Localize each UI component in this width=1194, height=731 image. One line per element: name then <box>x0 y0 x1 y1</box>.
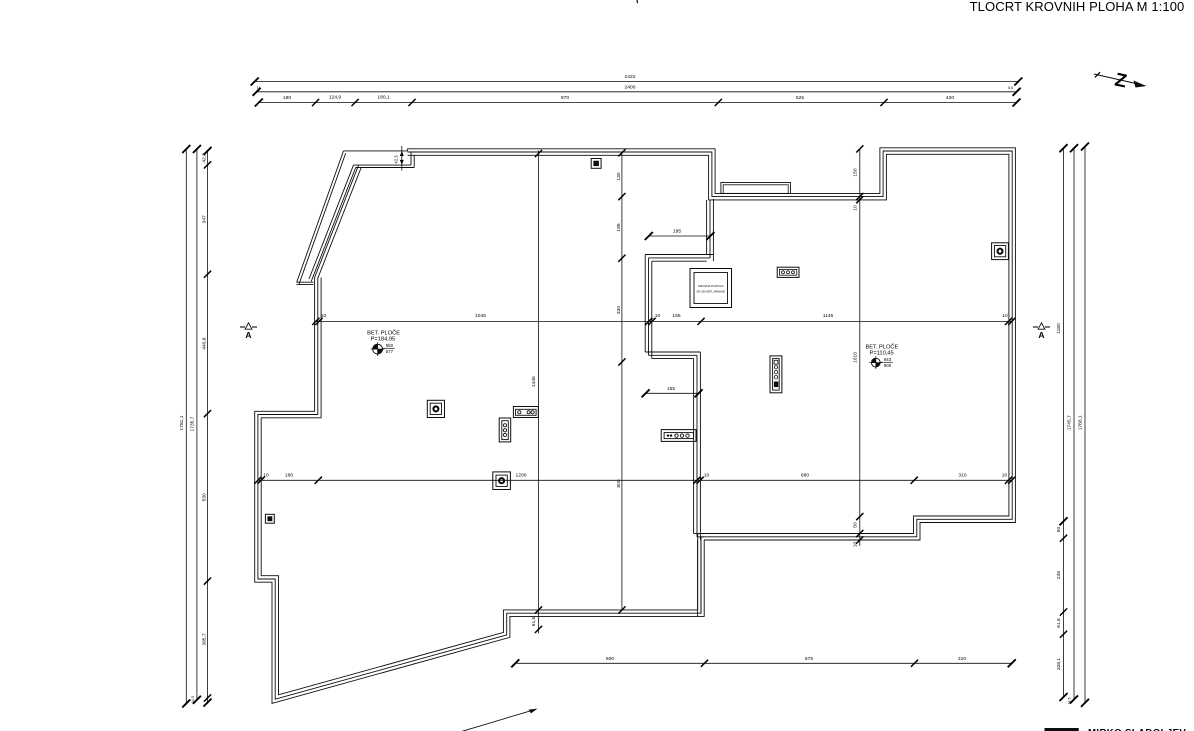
svg-text:680: 680 <box>801 473 809 479</box>
svg-text:10: 10 <box>263 473 269 479</box>
svg-text:14,5: 14,5 <box>191 696 195 703</box>
svg-text:1781,1: 1781,1 <box>179 415 185 430</box>
svg-text:310: 310 <box>958 473 966 479</box>
svg-text:50: 50 <box>853 522 859 528</box>
svg-text:2422: 2422 <box>625 74 636 80</box>
svg-text:61,6: 61,6 <box>1056 618 1062 628</box>
svg-text:10: 10 <box>853 205 859 211</box>
svg-text:A: A <box>1038 330 1044 340</box>
svg-text:530: 530 <box>202 493 208 501</box>
svg-text:195: 195 <box>616 223 622 231</box>
svg-text:10: 10 <box>1002 473 1008 479</box>
svg-text:155: 155 <box>667 386 675 392</box>
svg-text:180,1: 180,1 <box>377 95 390 101</box>
svg-text:328,1: 328,1 <box>1056 658 1062 671</box>
svg-text:1180: 1180 <box>1056 323 1062 334</box>
svg-text:1045: 1045 <box>475 313 486 319</box>
svg-text:10: 10 <box>853 542 859 548</box>
svg-text:42,3: 42,3 <box>202 153 208 163</box>
svg-text:2400: 2400 <box>625 85 636 91</box>
svg-text:195: 195 <box>673 229 681 235</box>
svg-text:130: 130 <box>616 172 622 180</box>
svg-text:970: 970 <box>561 95 569 101</box>
svg-text:14,5: 14,5 <box>1068 698 1072 705</box>
svg-text:P=110,45: P=110,45 <box>870 351 894 357</box>
svg-text:11: 11 <box>257 86 261 90</box>
svg-text:577: 577 <box>386 349 394 354</box>
svg-text:150: 150 <box>853 168 859 176</box>
svg-text:1735,7: 1735,7 <box>190 416 196 431</box>
svg-text:10: 10 <box>1002 313 1008 319</box>
svg-text:1145: 1145 <box>823 313 834 319</box>
svg-text:124,9: 124,9 <box>329 95 342 101</box>
svg-text:155: 155 <box>672 313 680 319</box>
svg-text:943: 943 <box>884 357 892 362</box>
svg-text:61,6: 61,6 <box>531 616 537 626</box>
svg-text:1200: 1200 <box>516 473 527 479</box>
svg-text:42,3: 42,3 <box>394 155 399 164</box>
svg-text:440,8: 440,8 <box>202 337 208 350</box>
svg-text:600: 600 <box>606 656 614 662</box>
svg-text:10: 10 <box>655 313 661 319</box>
svg-text:1766,1: 1766,1 <box>1078 415 1084 430</box>
svg-text:550: 550 <box>386 343 394 348</box>
svg-text:BET. PLOČE: BET. PLOČE <box>367 329 400 336</box>
svg-text:10: 10 <box>321 313 327 319</box>
svg-text:675: 675 <box>805 656 813 662</box>
svg-text:900: 900 <box>884 363 892 368</box>
svg-text:347: 347 <box>202 215 208 223</box>
svg-text:10: 10 <box>704 473 710 479</box>
svg-text:ZA OSVJETLJAVANJE: ZA OSVJETLJAVANJE <box>696 290 725 294</box>
svg-text:TLOCRT KROVNIH PLOHA M 1:100: TLOCRT KROVNIH PLOHA M 1:100 <box>970 0 1185 14</box>
svg-text:525: 525 <box>796 95 804 101</box>
svg-text:P=184,95: P=184,95 <box>371 336 396 342</box>
svg-text:1745,7: 1745,7 <box>1067 415 1073 430</box>
svg-text:310: 310 <box>958 656 966 662</box>
svg-text:1010: 1010 <box>853 352 859 363</box>
svg-text:8,5: 8,5 <box>1008 86 1013 90</box>
svg-text:50: 50 <box>1056 527 1062 533</box>
svg-text:330: 330 <box>616 306 622 314</box>
svg-text:MIRKO SLADOLJEV: MIRKO SLADOLJEV <box>1088 728 1186 731</box>
svg-text:800: 800 <box>616 479 622 487</box>
svg-text:1445: 1445 <box>531 376 537 387</box>
svg-text:A: A <box>245 330 251 340</box>
svg-text:180: 180 <box>283 95 291 101</box>
svg-text:180: 180 <box>285 473 293 479</box>
svg-text:385,7: 385,7 <box>202 633 208 646</box>
svg-text:420: 420 <box>946 95 954 101</box>
svg-text:245: 245 <box>1056 571 1062 579</box>
svg-text:KROVNA KUPOLA: KROVNA KUPOLA <box>698 284 724 288</box>
